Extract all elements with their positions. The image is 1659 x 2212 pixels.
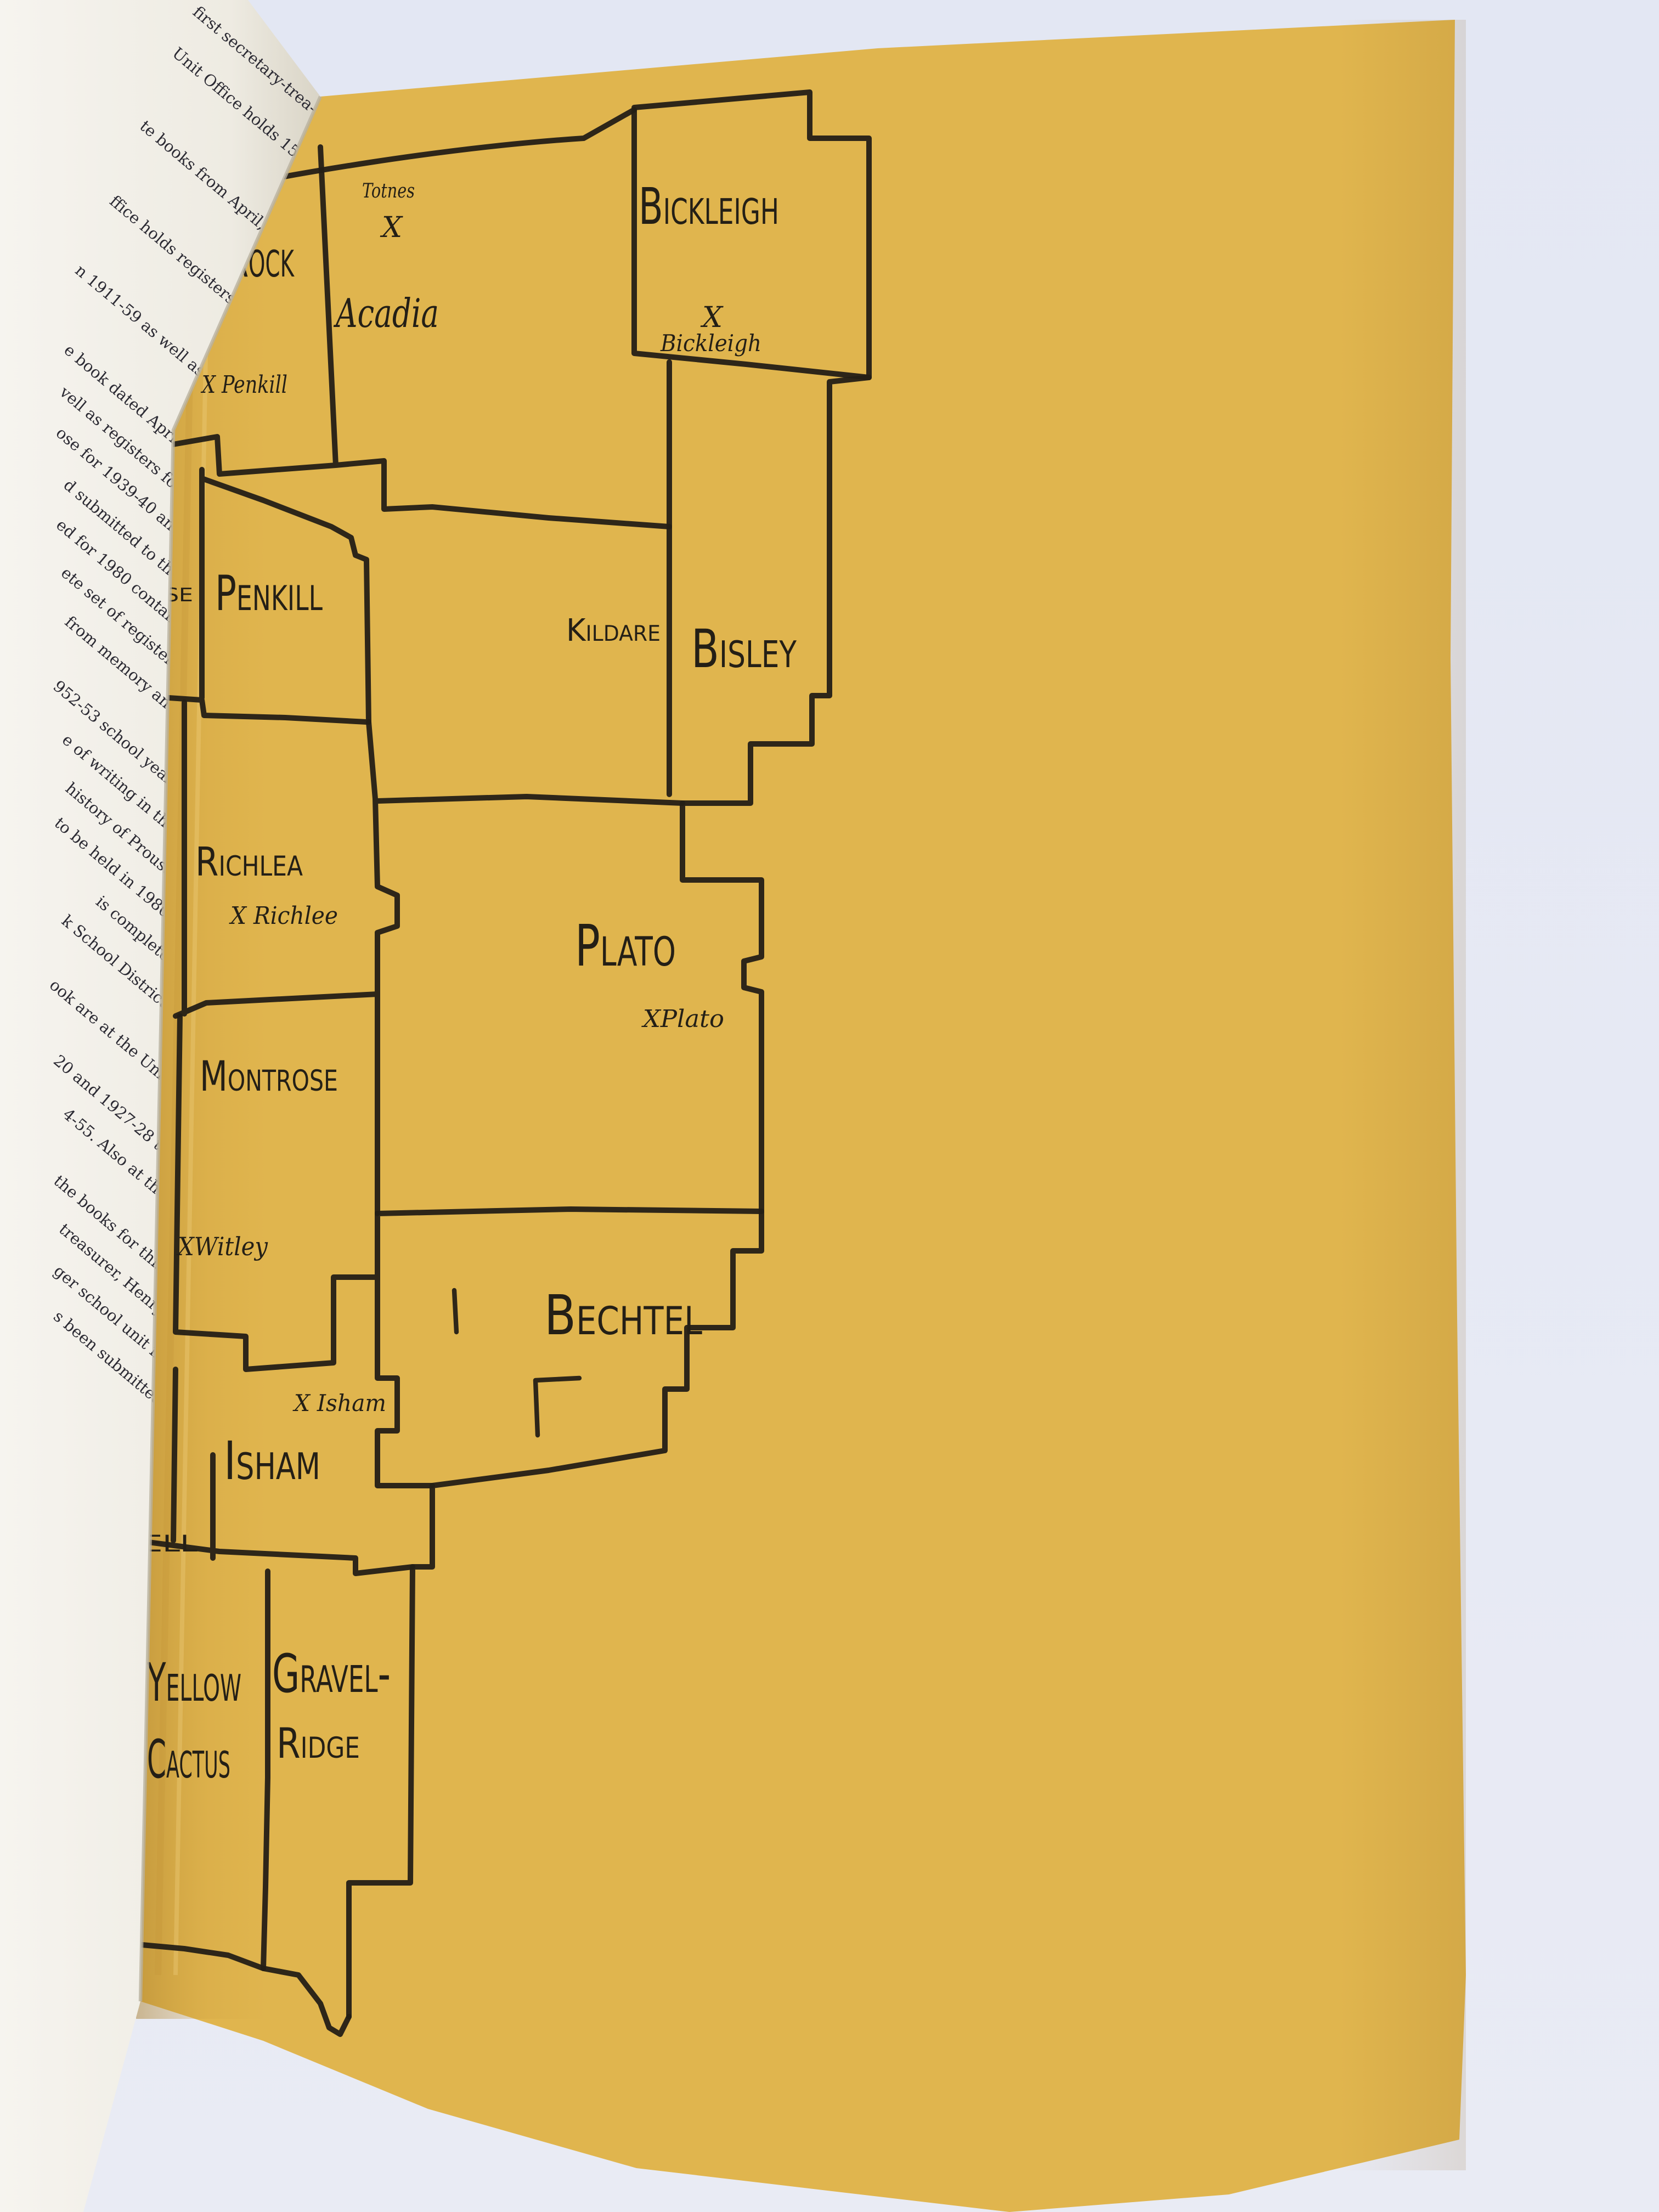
book-photo: Red Rock Acadia Bickleigh se Penkill Kil…	[0, 0, 1659, 2212]
mark-penkill-x: X Penkill	[201, 371, 287, 399]
mark-witley-x: XWitley	[176, 1232, 268, 1261]
label-kildare: Kildare	[566, 613, 661, 648]
mark-plato-x: XPlato	[641, 1005, 724, 1033]
label-gravel-ridge-2: Ridge	[276, 1719, 360, 1768]
label-gravel-ridge-1: Gravel-	[272, 1643, 391, 1705]
label-yellow-cactus-1: Yellow	[146, 1652, 241, 1713]
mark-bickleigh-town: Bickleigh	[660, 330, 761, 357]
label-acadia: Acadia	[333, 290, 439, 336]
mark-richlee-x: X Richlee	[229, 902, 338, 930]
label-montrose: Montrose	[200, 1052, 338, 1101]
label-richlea: Richlea	[195, 839, 303, 885]
mark-totnes: Totnes	[362, 180, 415, 202]
label-penkill: Penkill	[215, 565, 323, 622]
map-page	[140, 20, 1466, 2212]
mark-bickleigh-x-icon: X	[700, 301, 724, 334]
page-edge-shading	[1339, 20, 1466, 2170]
label-bickleigh: Bickleigh	[639, 177, 779, 236]
mark-isham-x: X Isham	[292, 1390, 386, 1417]
label-plato: Plato	[575, 912, 676, 979]
label-bisley: Bisley	[691, 618, 797, 680]
label-bechtel: Bechtel	[544, 1283, 702, 1347]
mark-totnes-x-icon: X	[380, 211, 403, 244]
label-isham: Isham	[224, 1430, 320, 1492]
label-yellow-cactus-2: Cactus	[147, 1729, 230, 1790]
